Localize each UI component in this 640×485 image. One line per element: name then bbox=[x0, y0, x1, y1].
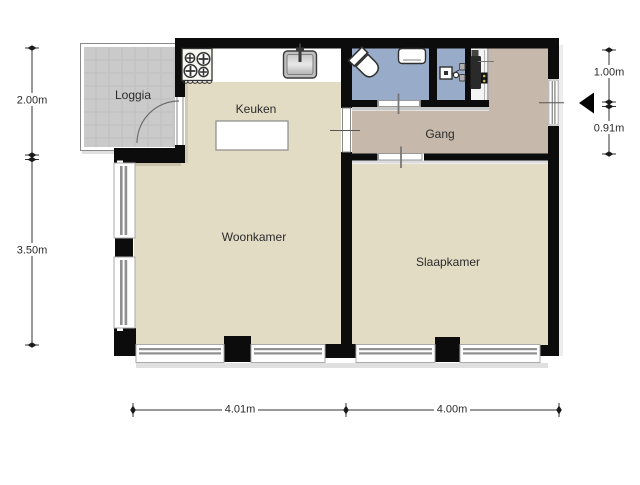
svg-text:0.91m: 0.91m bbox=[594, 123, 625, 135]
svg-text:Gang: Gang bbox=[425, 127, 454, 141]
svg-text:Slaapkamer: Slaapkamer bbox=[416, 255, 480, 269]
svg-text:4.01m: 4.01m bbox=[225, 404, 256, 416]
svg-text:4.00m: 4.00m bbox=[437, 404, 468, 416]
svg-text:1.00m: 1.00m bbox=[594, 67, 625, 79]
svg-text:Loggia: Loggia bbox=[115, 88, 151, 102]
svg-text:3.50m: 3.50m bbox=[17, 245, 48, 257]
svg-text:2.00m: 2.00m bbox=[17, 95, 48, 107]
svg-text:Woonkamer: Woonkamer bbox=[222, 230, 286, 244]
svg-text:Keuken: Keuken bbox=[236, 102, 277, 116]
